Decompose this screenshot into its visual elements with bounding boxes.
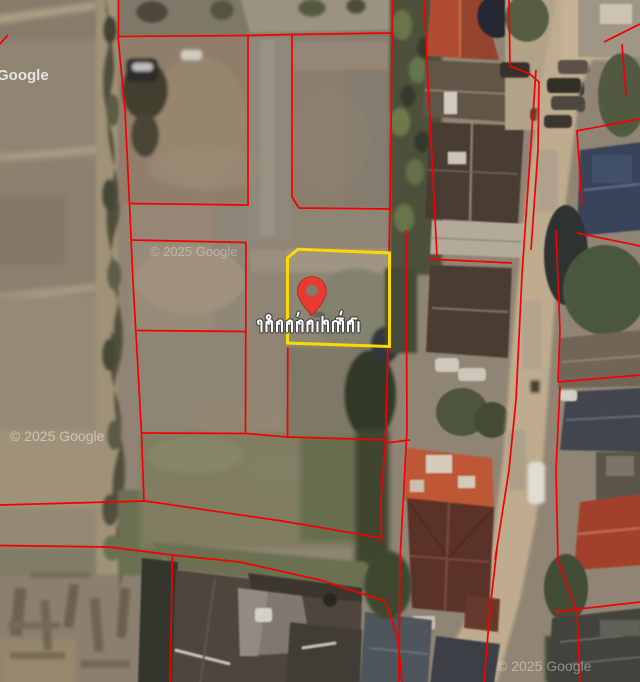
svg-text:Google: Google xyxy=(0,67,49,84)
svg-text:© 2025 Google: © 2025 Google xyxy=(150,244,238,259)
svg-text:© 2025 Google: © 2025 Google xyxy=(497,658,592,674)
svg-text:© 2025 Google: © 2025 Google xyxy=(10,428,105,444)
